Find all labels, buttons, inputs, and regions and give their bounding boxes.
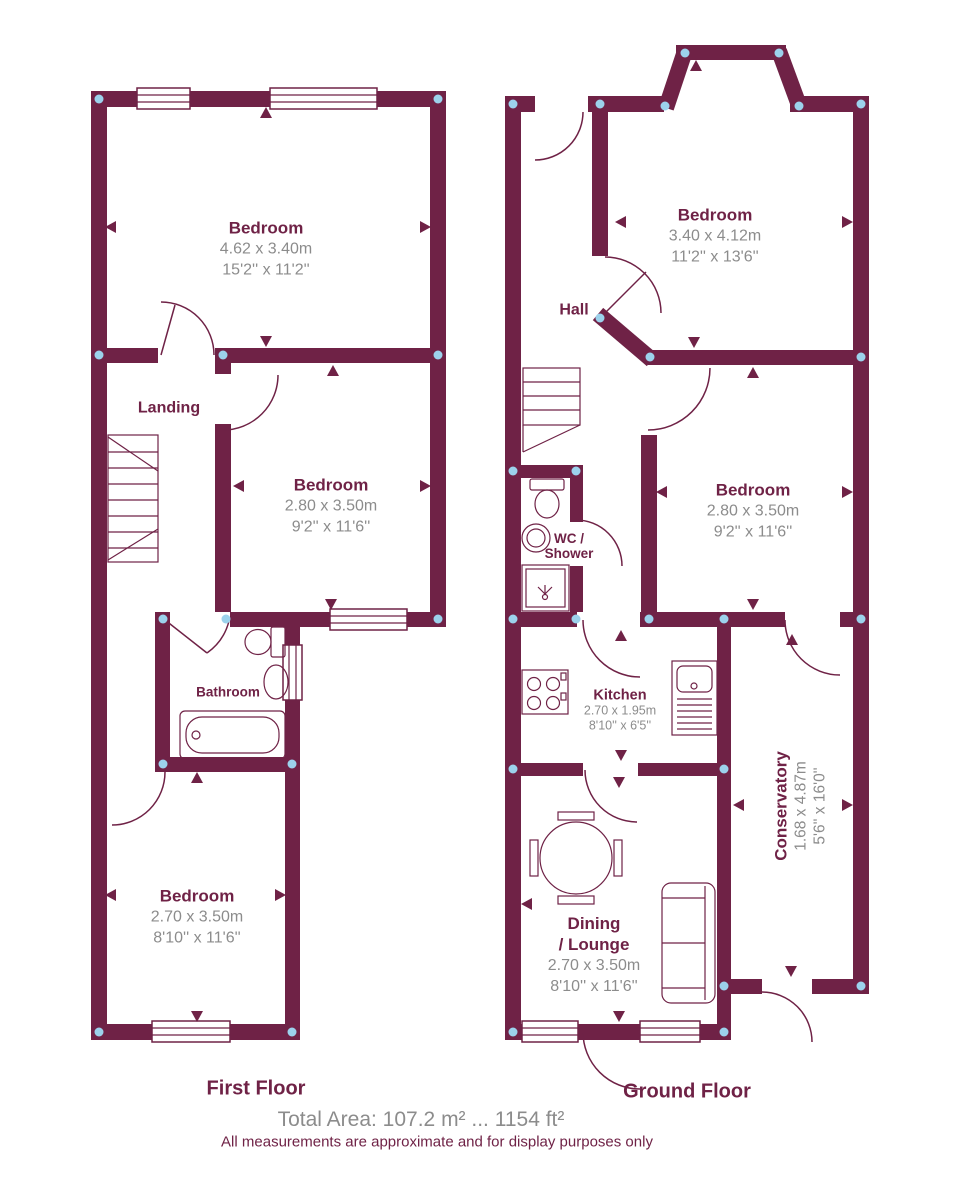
ground-floor-stairs — [523, 368, 580, 452]
toilet-icon — [245, 627, 285, 657]
gf-bedroom-front-label: Bedroom 3.40 x 4.12m 11'2'' x 13'6'' — [669, 205, 762, 268]
gf-conservatory-label: Conservatory 1.68 x 4.87m 5'6'' x 16'0'' — [771, 751, 830, 861]
hob-icon — [522, 670, 568, 714]
shower-tray-icon — [522, 565, 569, 611]
floorplan-page: Bedroom 4.62 x 3.40m 15'2'' x 11'2'' Lan… — [0, 0, 967, 1200]
gf-bedroom-middle-label: Bedroom 2.80 x 3.50m 9'2'' x 11'6'' — [707, 480, 800, 543]
gf-hall-label: Hall — [559, 301, 588, 320]
first-floor-title: First Floor — [207, 1078, 306, 1101]
total-area-text: Total Area: 107.2 m² ... 1154 ft² — [278, 1108, 565, 1132]
disclaimer-text: All measurements are approximate and for… — [221, 1134, 653, 1151]
first-floor-stairs — [108, 435, 158, 562]
ff-bedroom-front-label: Bedroom 4.62 x 3.40m 15'2'' x 11'2'' — [220, 218, 313, 281]
ground-floor-title: Ground Floor — [623, 1081, 751, 1104]
wc-toilet-icon — [530, 479, 564, 518]
gf-wc-shower-label: WC / Shower — [545, 531, 594, 561]
ff-landing-label: Landing — [138, 399, 200, 418]
bathtub-icon — [180, 711, 285, 759]
dining-table-icon — [530, 812, 622, 904]
gf-dining-lounge-label: Dining / Lounge 2.70 x 3.50m 8'10'' x 11… — [548, 913, 641, 997]
first-floor-doors — [112, 302, 278, 825]
ff-bathroom-label: Bathroom — [196, 685, 260, 700]
floorplan-drawing — [0, 0, 967, 1200]
gf-kitchen-label: Kitchen 2.70 x 1.95m 8'10'' x 6'5'' — [584, 689, 656, 734]
sofa-icon — [662, 883, 715, 1003]
ff-bedroom-middle-label: Bedroom 2.80 x 3.50m 9'2'' x 11'6'' — [285, 475, 378, 538]
ff-bedroom-back-label: Bedroom 2.70 x 3.50m 8'10'' x 11'6'' — [151, 886, 244, 949]
kitchen-sink-icon — [672, 661, 717, 735]
